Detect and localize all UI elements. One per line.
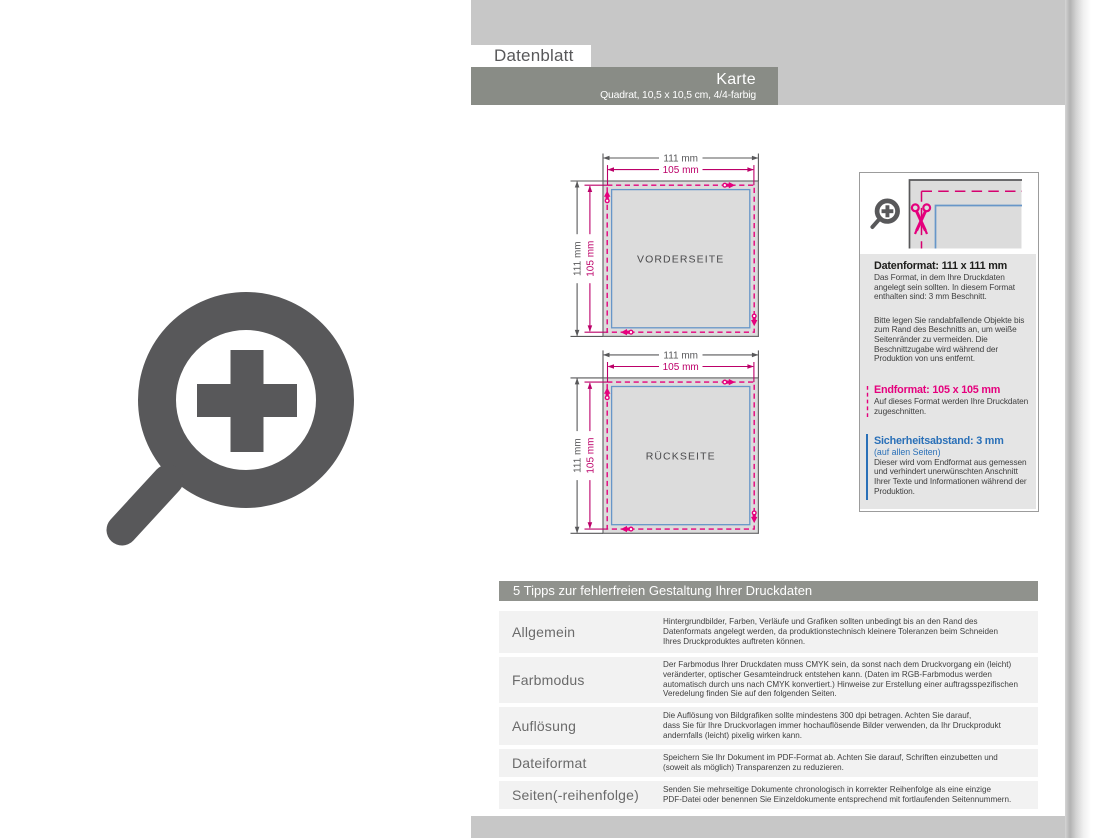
svg-text:111 mm: 111 mm [663,154,698,165]
svg-text:111 mm: 111 mm [573,438,584,473]
svg-text:111 mm: 111 mm [663,351,698,362]
svg-text:111 mm: 111 mm [573,241,584,276]
svg-text:105 mm: 105 mm [586,438,597,474]
svg-text:105 mm: 105 mm [663,165,699,176]
svg-text:VORDERSEITE: VORDERSEITE [637,254,724,266]
svg-text:105 mm: 105 mm [586,241,597,277]
svg-text:105 mm: 105 mm [663,362,699,373]
svg-text:RÜCKSEITE: RÜCKSEITE [646,451,716,463]
